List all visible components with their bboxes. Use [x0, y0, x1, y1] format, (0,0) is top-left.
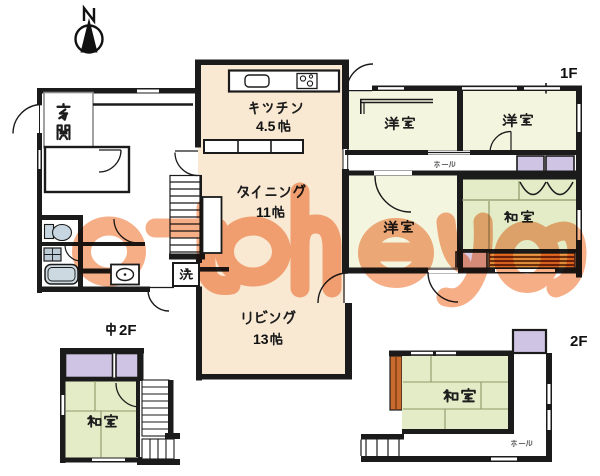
svg-text:2F: 2F	[119, 322, 137, 339]
svg-text:1F: 1F	[560, 65, 578, 82]
svg-text:4.5: 4.5	[256, 118, 276, 134]
svg-text:2F: 2F	[570, 333, 588, 350]
svg-text:13: 13	[253, 331, 269, 347]
